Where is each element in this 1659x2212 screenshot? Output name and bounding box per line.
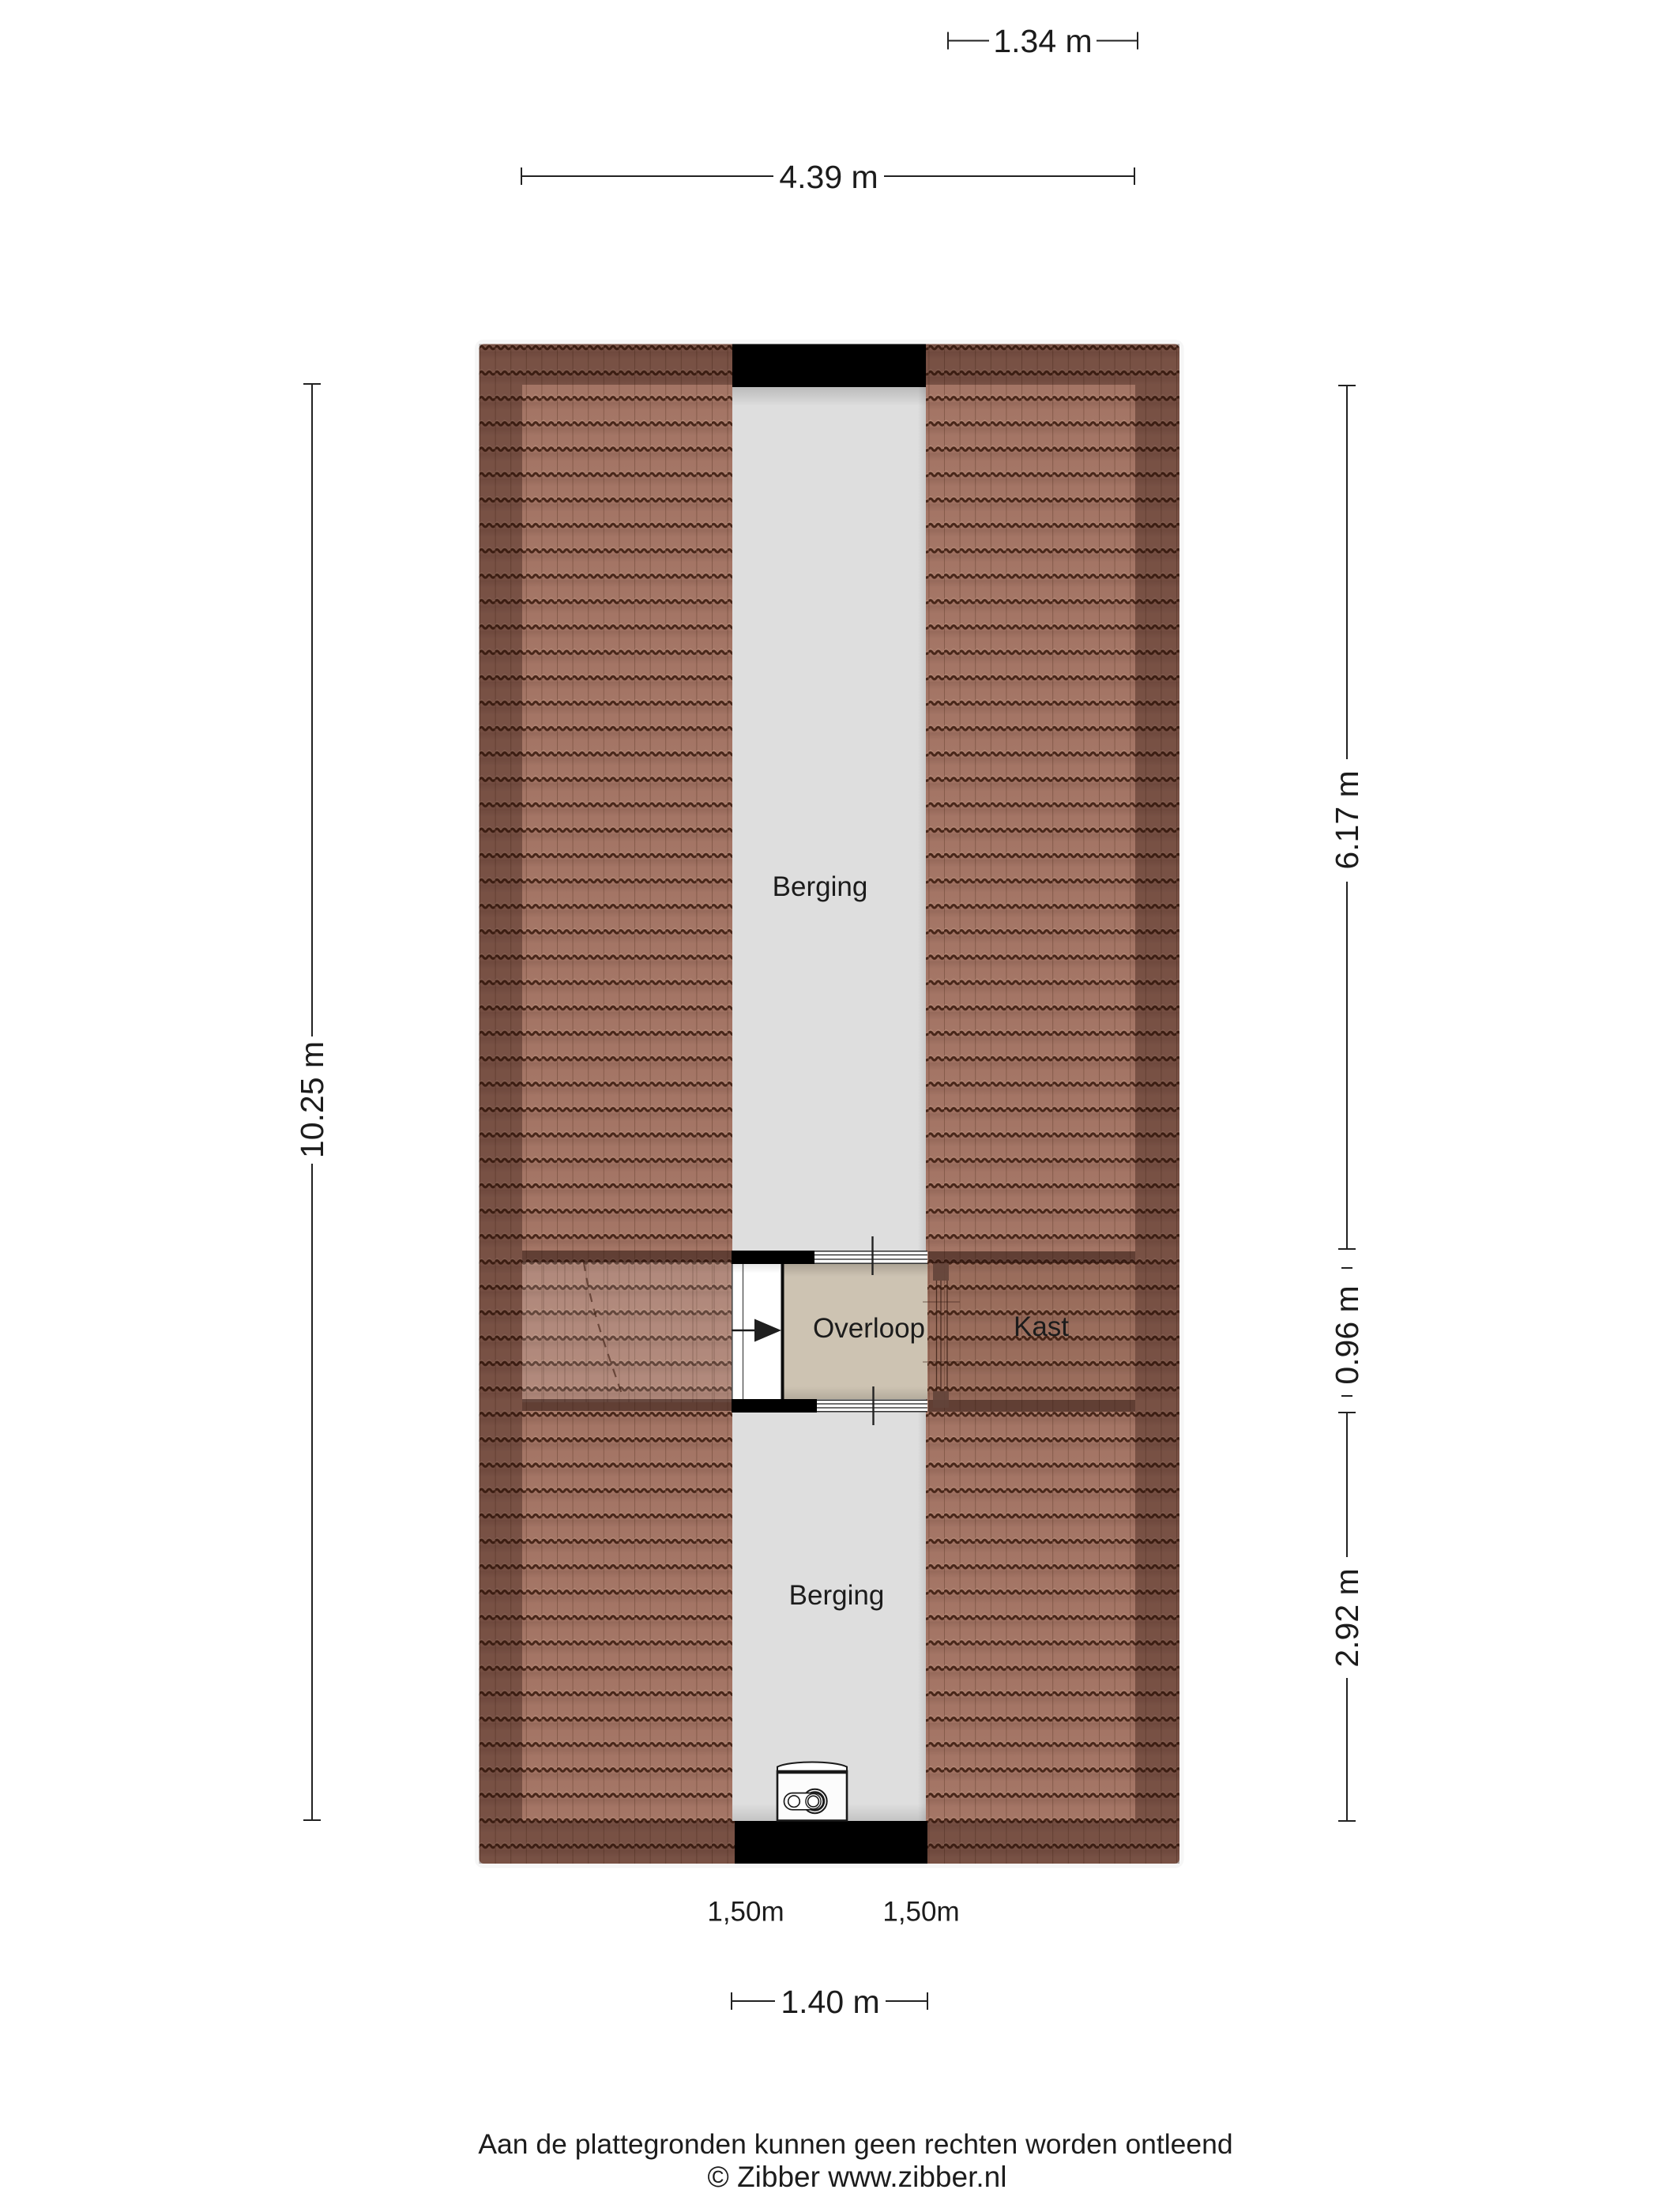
svg-text:1.40 m: 1.40 m (781, 1984, 879, 2020)
svg-text:6.17 m: 6.17 m (1329, 770, 1365, 869)
svg-text:1,50m: 1,50m (707, 1897, 784, 1928)
svg-text:2.92 m: 2.92 m (1329, 1568, 1365, 1667)
svg-text:4.39 m: 4.39 m (779, 159, 878, 195)
svg-text:1,50m: 1,50m (882, 1897, 959, 1928)
svg-text:Kast: Kast (1014, 1311, 1069, 1342)
svg-text:0.96 m: 0.96 m (1329, 1285, 1365, 1384)
svg-text:Berging: Berging (773, 871, 868, 902)
svg-text:© Zibber www.zibber.nl: © Zibber www.zibber.nl (708, 2161, 1007, 2193)
svg-text:1.34 m: 1.34 m (993, 23, 1092, 59)
svg-text:10.25 m: 10.25 m (294, 1041, 330, 1158)
svg-text:Berging: Berging (789, 1580, 885, 1611)
svg-text:Overloop: Overloop (813, 1313, 925, 1344)
svg-text:Aan de plattegronden kunnen ge: Aan de plattegronden kunnen geen rechten… (478, 2128, 1232, 2160)
